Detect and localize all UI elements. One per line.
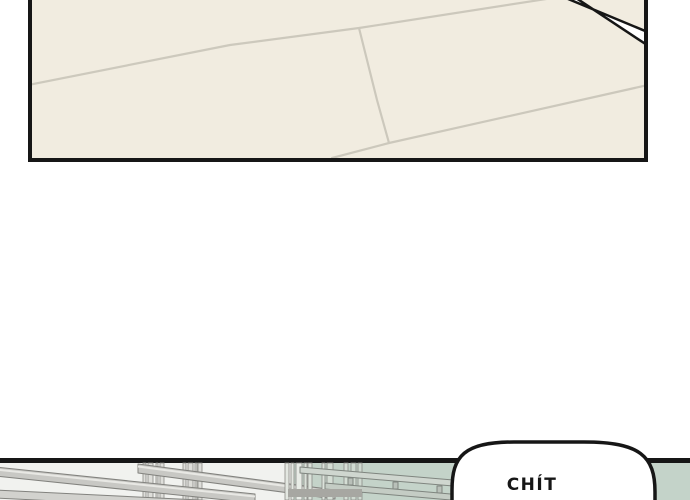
comic-page: CHÍT [0, 0, 690, 500]
shelf-shadow-band [288, 489, 362, 497]
shelf-room-artwork [0, 440, 690, 500]
rail-bracket [348, 478, 353, 485]
floor-artwork [32, 0, 644, 158]
rail-bracket [437, 486, 442, 493]
rail-bracket [393, 482, 398, 489]
speech-bubble-text: CHÍT [486, 475, 578, 495]
bottom-panel-shelves: CHÍT [0, 440, 690, 500]
top-panel-floor [28, 0, 648, 162]
floor-surface [32, 0, 644, 158]
